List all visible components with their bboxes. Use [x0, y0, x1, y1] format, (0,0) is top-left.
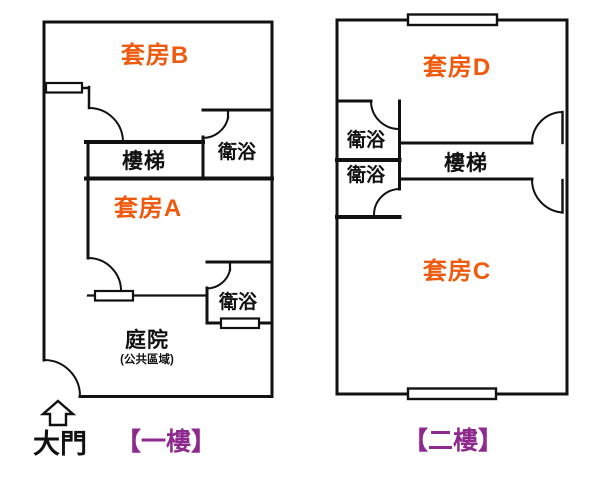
bath-door-arc — [374, 189, 400, 216]
window — [221, 319, 259, 329]
suite-a-label: 套房A — [114, 197, 182, 221]
floor2-caption: 【二樓】 — [403, 429, 503, 454]
window — [408, 15, 497, 26]
bath-1f-bottom-label: 衛浴 — [219, 293, 257, 312]
stairs-2f-label: 樓梯 — [444, 153, 488, 174]
suite-a-door-arc — [89, 258, 121, 293]
suite-b-door-arc — [89, 108, 123, 142]
gate-label: 大門 — [33, 431, 87, 458]
floor1-caption: 【一樓】 — [116, 430, 216, 455]
window — [95, 291, 133, 301]
bath-2f-bottom-label: 衛浴 — [347, 166, 385, 185]
suite-c-label: 套房C — [423, 260, 491, 284]
suite-d-door-arc — [532, 112, 563, 143]
window — [408, 389, 496, 400]
stairs-1f-label: 樓梯 — [122, 151, 166, 172]
up-arrow-icon — [43, 401, 73, 425]
courtyard-note-label: (公共區域) — [120, 355, 174, 367]
floor-plan-page: 套房B 樓梯 衛浴 套房A 衛浴 庭院 (公共區域) 大門 【一樓】 套房D 衛… — [0, 0, 606, 480]
suite-c-door-arc — [532, 180, 563, 213]
bath-door-arc — [207, 270, 230, 289]
bath-2f-top-label: 衛浴 — [347, 131, 385, 150]
suite-d-label: 套房D — [423, 56, 491, 80]
window — [46, 83, 82, 93]
bath-door-arc — [203, 118, 228, 138]
gate-door-arc — [46, 360, 81, 396]
floor-plan-drawing — [0, 0, 606, 480]
bath-door-arc — [371, 101, 399, 129]
courtyard-label: 庭院 — [125, 330, 169, 351]
bath-1f-top-label: 衛浴 — [218, 143, 256, 162]
suite-b-label: 套房B — [121, 44, 189, 68]
